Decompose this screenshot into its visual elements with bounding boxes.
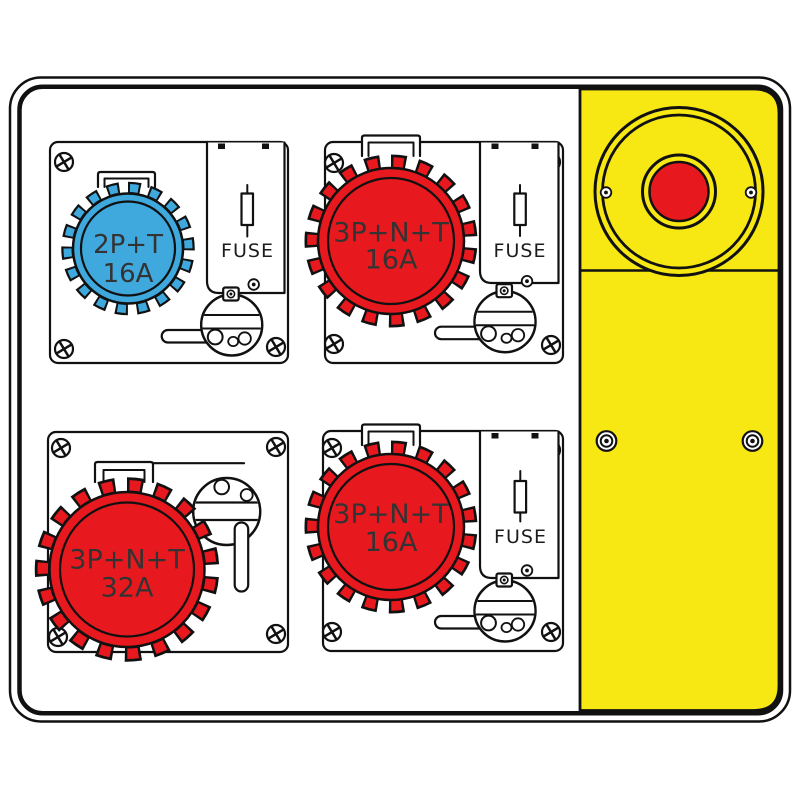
socket-unit-top-left: FUSE 2P+T 16A [50,142,288,363]
phillips-screw [542,623,560,641]
panel-fixing-screw [597,431,617,451]
bezel-screw [601,187,612,198]
phillips-screw [542,336,560,354]
latch-slot [218,144,225,150]
latch-slot [532,433,539,439]
panel-fixing-screw [743,431,763,451]
fuse-compartment[interactable]: FUSE [480,143,559,284]
socket-hinge-tab [98,172,155,187]
socket-unit-bottom-left: 3P+N+T 32A [43,432,288,654]
socket-hinge-tab [362,136,420,157]
fuse-compartment[interactable]: FUSE [207,143,285,294]
socket-type-label: 3P+N+T [69,545,185,576]
phillips-screw [52,439,70,457]
socket-rating-label: 16A [365,245,418,276]
socket-unit-top-right: FUSE 3P+N+T 16A [312,136,563,364]
phillips-screw [267,438,285,456]
latch-slot [262,144,269,150]
latch-slot [492,144,499,150]
socket-rating-label: 32A [101,573,154,604]
socket-type-label: 2P+T [93,230,163,260]
socket-rating-label: 16A [365,527,418,558]
socket-unit-bottom-right: FUSE 3P+N+T 16A [312,425,563,652]
phillips-screw [267,338,285,356]
phillips-screw [325,154,343,172]
switch-lever[interactable] [235,523,249,592]
bezel-screw [746,187,757,198]
fuse-compartment[interactable]: FUSE [480,432,559,579]
emergency-stop-button[interactable] [650,162,709,221]
phillips-screw [323,623,341,641]
board-drawing: FUSE 2P+T 16A [0,0,800,800]
latch-slot [492,433,499,439]
socket-type-label: 3P+N+T [333,499,449,530]
phillips-screw [55,340,73,358]
fuse-label: FUSE [494,526,547,548]
phillips-screw [323,439,341,457]
phillips-screw [55,153,73,171]
emergency-stop-assembly [595,108,763,276]
latch-slot [532,144,539,150]
phillips-screw [267,625,285,643]
phillips-screw [325,335,343,353]
distribution-board-illustration: FUSE 2P+T 16A [0,0,800,800]
socket-rating-label: 16A [103,259,154,289]
fuse-label: FUSE [494,240,547,262]
emergency-stop-panel [580,89,779,711]
fuse-label: FUSE [221,240,274,262]
